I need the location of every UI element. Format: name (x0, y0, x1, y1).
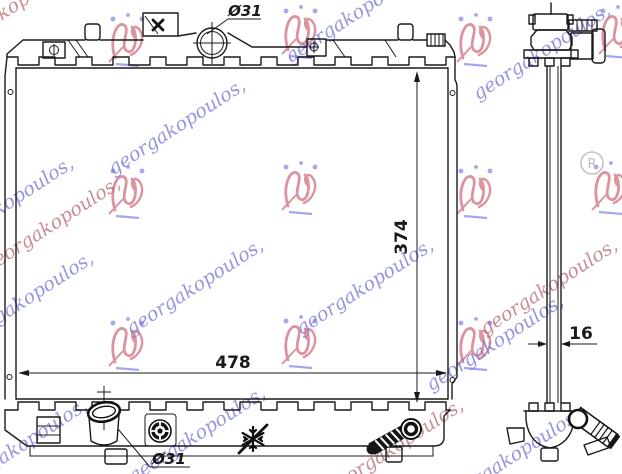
dim-height-label: 374 (392, 219, 412, 255)
registered-letter: R (587, 157, 596, 172)
drain-diameter-label: Ø31 (151, 450, 186, 468)
radiator-technical-drawing: georgakopoulos, georgakopoulos, georgako… (0, 0, 622, 474)
filler-diameter-label: Ø31 (227, 2, 262, 20)
dim-thickness-label: 16 (569, 324, 593, 344)
dim-width-label: 478 (215, 353, 251, 373)
drawing-canvas: georgakopoulos, georgakopoulos, georgako… (0, 0, 622, 474)
